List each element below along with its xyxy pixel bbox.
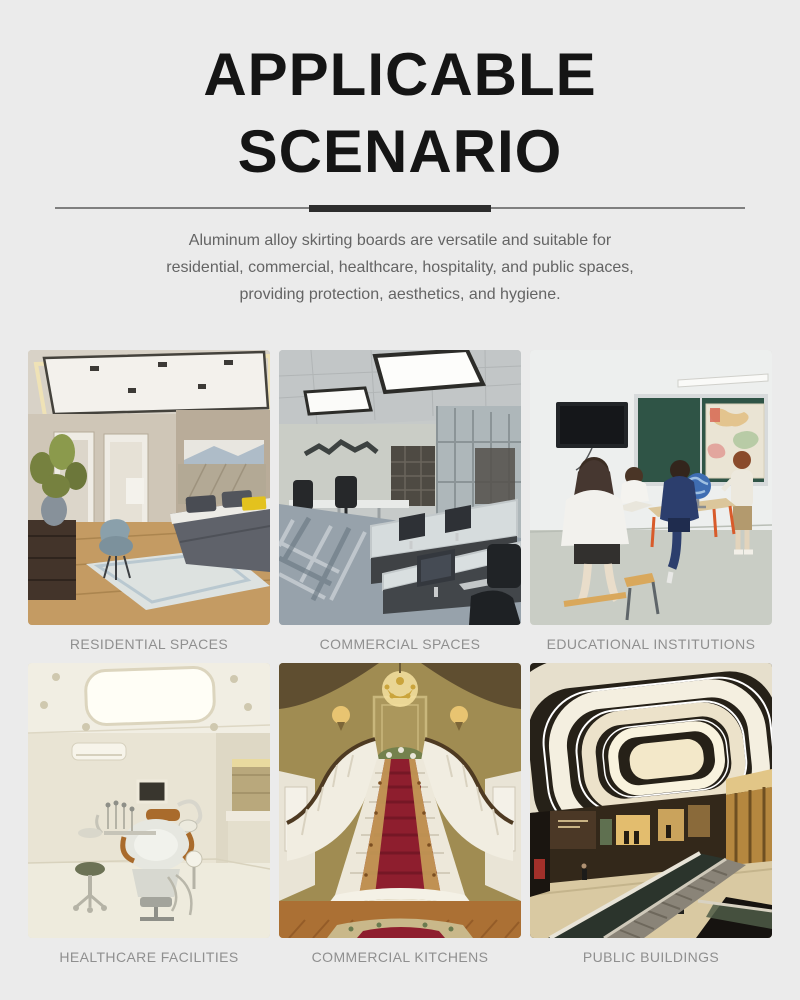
title-line-1: APPLICABLE	[0, 36, 800, 113]
scenario-card-public: PUBLIC BUILDINGS	[530, 663, 772, 976]
description-line-3: providing protection, aesthetics, and hy…	[0, 281, 800, 308]
residential-bedroom-photo	[28, 350, 270, 625]
dental-clinic-photo	[28, 663, 270, 938]
section-header: APPLICABLE SCENARIO Aluminum alloy skirt…	[0, 0, 800, 308]
office-workspace-photo	[279, 350, 521, 625]
page-title: APPLICABLE SCENARIO	[0, 36, 800, 190]
description-line-2: residential, commercial, healthcare, hos…	[0, 254, 800, 281]
description-line-1: Aluminum alloy skirting boards are versa…	[0, 227, 800, 254]
scenario-caption: COMMERCIAL KITCHENS	[279, 938, 521, 976]
classroom-photo	[530, 350, 772, 625]
scenario-caption: EDUCATIONAL INSTITUTIONS	[530, 625, 772, 663]
scenario-grid: RESIDENTIAL SPACES	[0, 350, 800, 976]
divider-thick-segment	[309, 205, 491, 212]
grand-staircase-lobby-photo	[279, 663, 521, 938]
scenario-card-healthcare: HEALTHCARE FACILITIES	[28, 663, 270, 976]
applicable-scenario-section: APPLICABLE SCENARIO Aluminum alloy skirt…	[0, 0, 800, 1000]
scenario-caption: COMMERCIAL SPACES	[279, 625, 521, 663]
scenario-card-residential: RESIDENTIAL SPACES	[28, 350, 270, 663]
title-line-2: SCENARIO	[0, 113, 800, 190]
scenario-card-educational: EDUCATIONAL INSTITUTIONS	[530, 350, 772, 663]
shopping-mall-atrium-photo	[530, 663, 772, 938]
scenario-caption: RESIDENTIAL SPACES	[28, 625, 270, 663]
section-description: Aluminum alloy skirting boards are versa…	[0, 227, 800, 308]
scenario-card-kitchens: COMMERCIAL KITCHENS	[279, 663, 521, 976]
scenario-caption: HEALTHCARE FACILITIES	[28, 938, 270, 976]
scenario-caption: PUBLIC BUILDINGS	[530, 938, 772, 976]
title-divider	[55, 205, 745, 212]
scenario-card-commercial: COMMERCIAL SPACES	[279, 350, 521, 663]
